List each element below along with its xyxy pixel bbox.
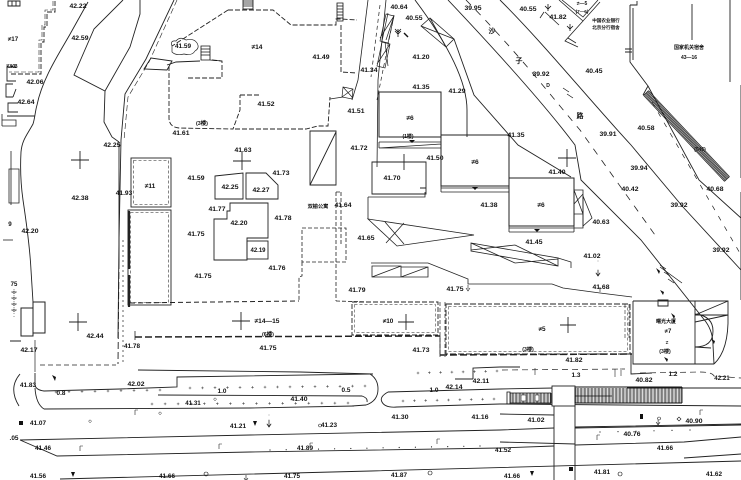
svg-text:≠10: ≠10 bbox=[383, 318, 394, 325]
svg-text:39.92: 39.92 bbox=[670, 202, 687, 209]
svg-text:≠17: ≠17 bbox=[8, 36, 19, 43]
svg-text:42.21: 42.21 bbox=[714, 375, 730, 382]
svg-text:42.02: 42.02 bbox=[127, 381, 144, 388]
svg-text:41.93: 41.93 bbox=[116, 190, 133, 197]
svg-text:41.76: 41.76 bbox=[268, 265, 285, 272]
svg-text:(3楼): (3楼) bbox=[659, 347, 671, 355]
svg-text:41.89: 41.89 bbox=[297, 445, 313, 452]
svg-text:.05: .05 bbox=[10, 435, 19, 442]
svg-text:40.55: 40.55 bbox=[519, 6, 536, 13]
svg-text:41.82: 41.82 bbox=[565, 357, 582, 364]
svg-text:(6楼): (6楼) bbox=[262, 330, 274, 338]
svg-text:75: 75 bbox=[11, 282, 18, 288]
svg-text:41.49: 41.49 bbox=[312, 54, 329, 61]
svg-text:(3楼): (3楼) bbox=[196, 119, 208, 127]
svg-text:41.21: 41.21 bbox=[230, 423, 246, 430]
svg-text:1.3: 1.3 bbox=[572, 372, 581, 379]
svg-text:41.16: 41.16 bbox=[471, 414, 488, 421]
svg-text:41.52: 41.52 bbox=[257, 101, 274, 108]
svg-text:≠14: ≠14 bbox=[252, 44, 263, 51]
svg-text:41.61: 41.61 bbox=[172, 130, 189, 137]
svg-text:41.75: 41.75 bbox=[446, 286, 463, 293]
svg-text:≠11: ≠11 bbox=[145, 183, 156, 190]
svg-text:41.63: 41.63 bbox=[234, 147, 251, 154]
svg-text:40.68: 40.68 bbox=[706, 186, 723, 193]
svg-text:42.20: 42.20 bbox=[21, 228, 38, 235]
svg-text:0.8: 0.8 bbox=[57, 390, 66, 397]
svg-text:41.66: 41.66 bbox=[159, 473, 175, 480]
svg-text:41.02: 41.02 bbox=[583, 253, 600, 260]
svg-text:路: 路 bbox=[577, 111, 585, 120]
svg-text:≠—5: ≠—5 bbox=[577, 1, 588, 7]
svg-text:1.2: 1.2 bbox=[669, 371, 678, 378]
svg-text:41.59: 41.59 bbox=[175, 43, 191, 50]
svg-text:曙光大厦: 曙光大厦 bbox=[656, 318, 677, 325]
svg-text:41.68: 41.68 bbox=[592, 284, 609, 291]
svg-text:41.65: 41.65 bbox=[357, 235, 374, 242]
svg-text:42.19: 42.19 bbox=[250, 248, 266, 254]
svg-text:40.90: 40.90 bbox=[685, 418, 702, 425]
svg-text:39.95: 39.95 bbox=[464, 5, 481, 12]
svg-text:41.70: 41.70 bbox=[383, 175, 400, 182]
svg-text:39.94: 39.94 bbox=[630, 165, 647, 172]
svg-text:41.78: 41.78 bbox=[274, 215, 291, 222]
svg-text:42.25: 42.25 bbox=[103, 142, 120, 149]
svg-text:41.77: 41.77 bbox=[208, 206, 225, 213]
svg-text:41.75: 41.75 bbox=[259, 345, 276, 352]
svg-text:41.75: 41.75 bbox=[187, 231, 204, 238]
svg-text:41.78: 41.78 bbox=[124, 343, 140, 350]
svg-text:40.45: 40.45 bbox=[585, 68, 602, 75]
svg-text:41.23: 41.23 bbox=[321, 422, 337, 429]
svg-text:42.27: 42.27 bbox=[252, 187, 269, 194]
svg-text:41.64: 41.64 bbox=[334, 202, 351, 209]
svg-text:沙: 沙 bbox=[489, 27, 496, 35]
svg-text:39.92: 39.92 bbox=[532, 71, 549, 78]
svg-text:39.91: 39.91 bbox=[599, 131, 616, 138]
svg-text:39.92: 39.92 bbox=[712, 247, 729, 254]
svg-text:40.58: 40.58 bbox=[637, 125, 654, 132]
svg-text:41.72: 41.72 bbox=[350, 145, 367, 152]
svg-text:40.42: 40.42 bbox=[621, 186, 638, 193]
svg-text:42.44: 42.44 bbox=[86, 333, 103, 340]
svg-text:41.56: 41.56 bbox=[30, 473, 46, 480]
svg-text:0.5: 0.5 bbox=[342, 387, 351, 394]
svg-text:42.59: 42.59 bbox=[71, 35, 88, 42]
svg-text:40.55: 40.55 bbox=[405, 15, 422, 22]
svg-text:41.83: 41.83 bbox=[20, 382, 36, 389]
svg-text:子: 子 bbox=[516, 57, 523, 65]
svg-text:42.64: 42.64 bbox=[17, 99, 34, 106]
svg-text:41.40: 41.40 bbox=[290, 396, 307, 403]
svg-text:41.07: 41.07 bbox=[30, 420, 46, 427]
svg-text:≠6: ≠6 bbox=[537, 202, 545, 209]
svg-text:≠14—15: ≠14—15 bbox=[255, 318, 280, 325]
svg-text:1.0: 1.0 bbox=[430, 387, 439, 394]
svg-text:41.81: 41.81 bbox=[594, 469, 610, 476]
svg-text:北京分行宿舍: 北京分行宿舍 bbox=[592, 24, 620, 31]
svg-text:42.22: 42.22 bbox=[69, 3, 86, 10]
svg-text:41.75: 41.75 bbox=[194, 273, 211, 280]
svg-text:41.73: 41.73 bbox=[272, 170, 289, 177]
svg-text:42.11: 42.11 bbox=[473, 378, 490, 385]
svg-text:41.35: 41.35 bbox=[507, 132, 524, 139]
svg-text:43—16: 43—16 bbox=[681, 55, 697, 61]
svg-text:42.25: 42.25 bbox=[221, 184, 238, 191]
svg-text:41.66: 41.66 bbox=[657, 445, 673, 452]
svg-text:40.82: 40.82 bbox=[635, 377, 652, 384]
svg-text:双榆公寓: 双榆公寓 bbox=[308, 202, 329, 210]
svg-text:42.06: 42.06 bbox=[26, 79, 43, 86]
svg-text:40.63: 40.63 bbox=[592, 219, 609, 226]
svg-text:41.52: 41.52 bbox=[495, 447, 511, 454]
svg-text:(3楼): (3楼) bbox=[522, 345, 534, 353]
svg-text:КЖВ: КЖВ bbox=[6, 64, 18, 70]
svg-text:(7—6): (7—6) bbox=[576, 9, 589, 14]
svg-text:41.75: 41.75 bbox=[284, 473, 300, 480]
svg-text:41.35: 41.35 bbox=[412, 84, 429, 91]
svg-text:41.66: 41.66 bbox=[504, 473, 520, 480]
svg-text:9: 9 bbox=[8, 221, 12, 228]
svg-text:40.64: 40.64 bbox=[390, 4, 407, 11]
svg-text:≠7: ≠7 bbox=[665, 329, 672, 335]
svg-text:41.87: 41.87 bbox=[391, 472, 407, 479]
svg-text:41.34: 41.34 bbox=[360, 67, 377, 74]
svg-text:42.38: 42.38 bbox=[71, 195, 88, 202]
svg-text:41.46: 41.46 bbox=[35, 445, 51, 452]
svg-text:41.30: 41.30 bbox=[391, 414, 408, 421]
svg-text:41.45: 41.45 bbox=[525, 239, 542, 246]
svg-text:41.79: 41.79 bbox=[348, 287, 365, 294]
svg-text:41.73: 41.73 bbox=[412, 347, 429, 354]
svg-text:中国农业银行: 中国农业银行 bbox=[592, 17, 620, 24]
svg-text:41.62: 41.62 bbox=[706, 471, 722, 478]
svg-text:41.31: 41.31 bbox=[185, 400, 201, 407]
svg-text:42.20: 42.20 bbox=[230, 220, 247, 227]
svg-text:42.14: 42.14 bbox=[445, 384, 462, 391]
svg-text:41.02: 41.02 bbox=[527, 417, 544, 424]
svg-text:≠6: ≠6 bbox=[406, 115, 414, 122]
svg-text:41.40: 41.40 bbox=[548, 169, 565, 176]
svg-text:(1楼): (1楼) bbox=[402, 133, 413, 140]
svg-text:41.38: 41.38 bbox=[480, 202, 497, 209]
svg-text:41.59: 41.59 bbox=[187, 175, 204, 182]
svg-text:D: D bbox=[546, 83, 550, 89]
svg-text:1.0: 1.0 bbox=[218, 388, 227, 395]
svg-text:≠6: ≠6 bbox=[471, 159, 479, 166]
svg-text:41.82: 41.82 bbox=[549, 14, 566, 21]
svg-text:国家机关宿舍: 国家机关宿舍 bbox=[674, 44, 705, 51]
svg-text:40.76: 40.76 bbox=[623, 431, 640, 438]
svg-text:41.51: 41.51 bbox=[347, 108, 364, 115]
svg-text:41.20: 41.20 bbox=[412, 54, 429, 61]
svg-text:41.29: 41.29 bbox=[448, 88, 465, 95]
svg-text:≠5: ≠5 bbox=[538, 326, 546, 333]
